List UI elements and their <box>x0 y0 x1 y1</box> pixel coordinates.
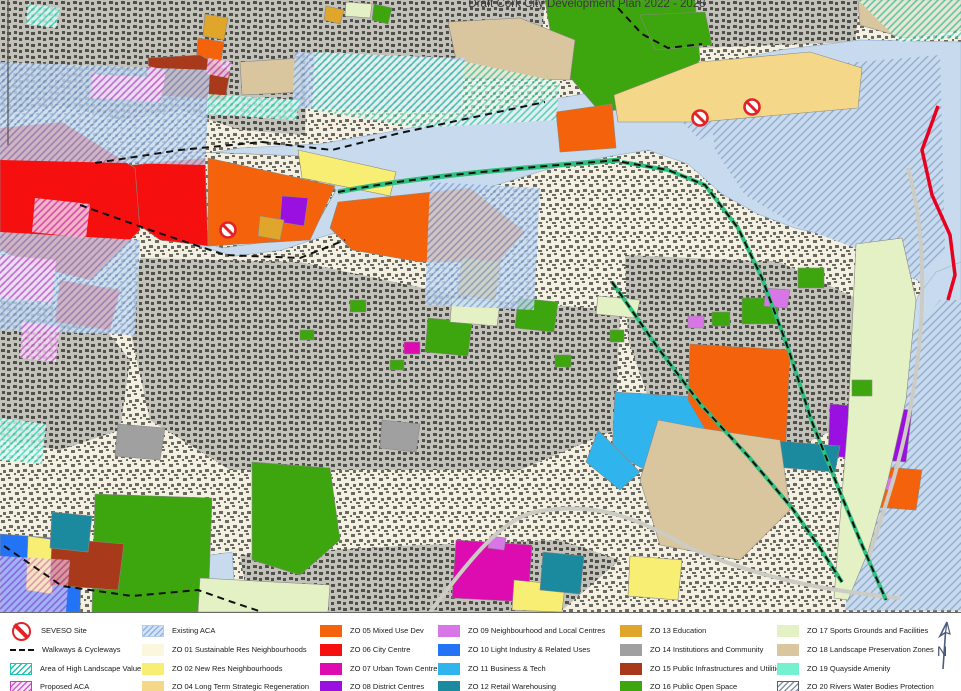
seveso-icon <box>12 622 31 641</box>
legend-label: SEVESO Site <box>41 627 87 635</box>
hatch-swatch <box>10 681 32 691</box>
legend-item-zo04: ZO 04 Long Term Strategic Regeneration <box>142 679 309 691</box>
color-swatch <box>320 644 342 656</box>
legend-item-zo14: ZO 14 Institutions and Community <box>620 642 763 658</box>
color-swatch <box>438 663 460 675</box>
legend-label: ZO 16 Public Open Space <box>650 683 737 691</box>
color-swatch <box>777 625 799 637</box>
legend-label: ZO 14 Institutions and Community <box>650 646 763 654</box>
legend-label: ZO 02 New Res Neighbourhoods <box>172 665 282 673</box>
legend-label: Proposed ACA <box>40 683 89 691</box>
legend-item-zo18: ZO 18 Landscape Preservation Zones <box>777 642 934 658</box>
zoning-map: Draft Cork City Development Plan 2022 - … <box>0 0 961 612</box>
legend-item-zo08: ZO 08 District Centres <box>320 679 424 691</box>
legend-item-zo09: ZO 09 Neighbourhood and Local Centres <box>438 623 605 639</box>
legend-item-high-landscape: Area of High Landscape Value <box>10 661 141 677</box>
legend-item-zo07: ZO 07 Urban Town Centre <box>320 661 437 677</box>
legend-item-zo13: ZO 13 Education <box>620 623 706 639</box>
legend-label: Area of High Landscape Value <box>40 665 141 673</box>
legend-label: Existing ACA <box>172 627 215 635</box>
legend-item-existing-aca: Existing ACA <box>142 623 215 639</box>
legend-label: ZO 01 Sustainable Res Neighbourhoods <box>172 646 307 654</box>
legend-item-zo01: ZO 01 Sustainable Res Neighbourhoods <box>142 642 307 658</box>
legend-item-zo12: ZO 12 Retail Warehousing <box>438 679 556 691</box>
legend-label: ZO 19 Quayside Amenity <box>807 665 890 673</box>
color-swatch <box>320 625 342 637</box>
legend-label: ZO 12 Retail Warehousing <box>468 683 556 691</box>
north-arrow: N <box>928 619 960 681</box>
hatch-swatch <box>142 625 164 637</box>
legend-item-zo20: ZO 20 Rivers Water Bodies Protection <box>777 679 934 691</box>
color-swatch <box>438 644 460 656</box>
legend-label: ZO 06 City Centre <box>350 646 410 654</box>
color-swatch <box>438 681 460 691</box>
color-swatch <box>142 681 164 691</box>
color-swatch <box>777 663 799 675</box>
cork-development-plan-page: Draft Cork City Development Plan 2022 - … <box>0 0 961 691</box>
legend-item-proposed-aca: Proposed ACA <box>10 679 89 691</box>
legend-item-zo19: ZO 19 Quayside Amenity <box>777 661 890 677</box>
legend-label: ZO 09 Neighbourhood and Local Centres <box>468 627 605 635</box>
legend-label: ZO 07 Urban Town Centre <box>350 665 437 673</box>
map-canvas[interactable]: Draft Cork City Development Plan 2022 - … <box>0 0 961 613</box>
legend-label: ZO 15 Public Infrastructures and Utiliti… <box>650 665 784 673</box>
legend-label: Walkways & Cycleways <box>42 646 121 654</box>
hatch-swatch <box>777 681 799 691</box>
legend-item-zo17: ZO 17 Sports Grounds and Facilities <box>777 623 928 639</box>
legend-item-zo11: ZO 11 Business & Tech <box>438 661 546 677</box>
legend-label: ZO 13 Education <box>650 627 706 635</box>
legend-label: ZO 08 District Centres <box>350 683 424 691</box>
color-swatch <box>620 644 642 656</box>
legend-item-walkways: Walkways & Cycleways <box>10 642 121 658</box>
hatch-swatch <box>10 663 32 675</box>
color-swatch <box>438 625 460 637</box>
north-arrow-label: N <box>937 643 947 659</box>
legend-label: ZO 05 Mixed Use Dev <box>350 627 424 635</box>
legend-item-zo06: ZO 06 City Centre <box>320 642 410 658</box>
color-swatch <box>620 681 642 691</box>
color-swatch <box>620 625 642 637</box>
legend-label: ZO 11 Business & Tech <box>468 665 546 673</box>
color-swatch <box>320 663 342 675</box>
legend-label: ZO 17 Sports Grounds and Facilities <box>807 627 928 635</box>
legend-label: ZO 10 Light Industry & Related Uses <box>468 646 590 654</box>
color-swatch <box>777 644 799 656</box>
legend-item-zo10: ZO 10 Light Industry & Related Uses <box>438 642 590 658</box>
legend-label: ZO 20 Rivers Water Bodies Protection <box>807 683 934 691</box>
legend-label: ZO 04 Long Term Strategic Regeneration <box>172 683 309 691</box>
legend-item-zo16: ZO 16 Public Open Space <box>620 679 737 691</box>
map-legend: SEVESO Site Walkways & Cycleways Area of… <box>0 613 961 691</box>
legend-item-zo15: ZO 15 Public Infrastructures and Utiliti… <box>620 661 784 677</box>
legend-item-zo02: ZO 02 New Res Neighbourhoods <box>142 661 282 677</box>
legend-label: ZO 18 Landscape Preservation Zones <box>807 646 934 654</box>
dashed-line-swatch <box>10 649 34 651</box>
color-swatch <box>142 663 164 675</box>
color-swatch <box>320 681 342 691</box>
color-swatch <box>142 644 164 656</box>
legend-item-seveso: SEVESO Site <box>10 623 87 639</box>
legend-item-zo05: ZO 05 Mixed Use Dev <box>320 623 424 639</box>
color-swatch <box>620 663 642 675</box>
map-title: Draft Cork City Development Plan 2022 - … <box>468 0 705 10</box>
